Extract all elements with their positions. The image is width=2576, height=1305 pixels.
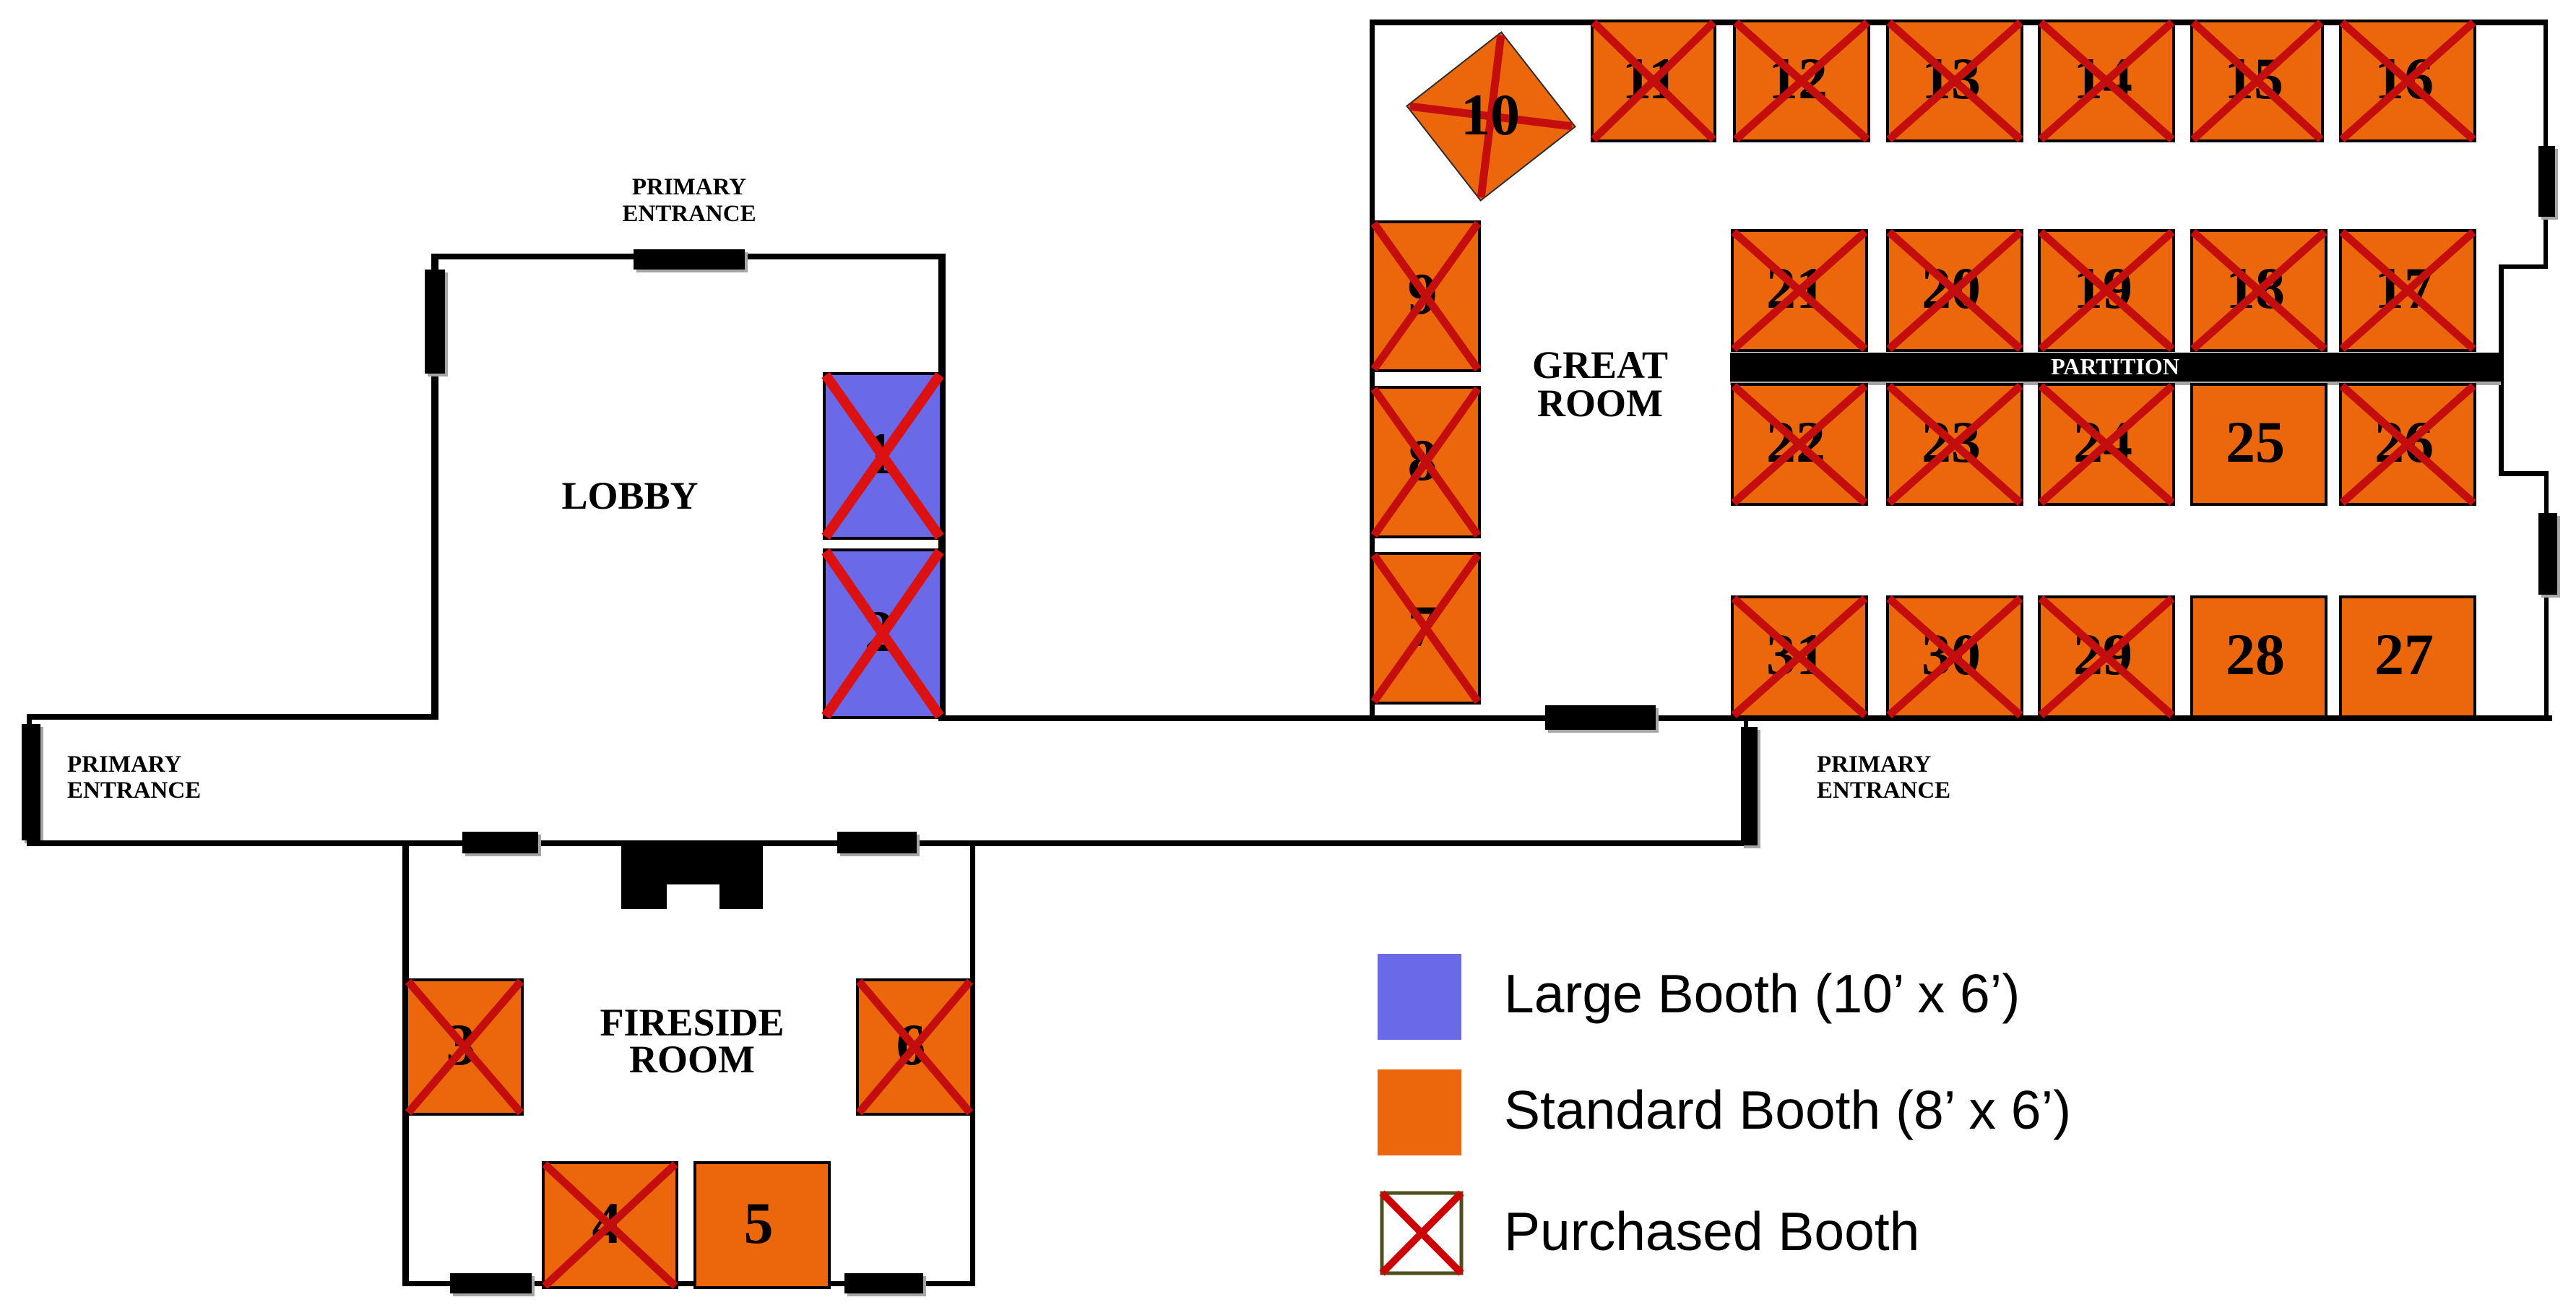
svg-text:27: 27 (2374, 621, 2434, 687)
svg-text:PRIMARY: PRIMARY (67, 751, 181, 778)
svg-text:10: 10 (1461, 82, 1520, 147)
svg-text:ROOM: ROOM (629, 1038, 755, 1081)
svg-text:Large Booth (10’ x 6’): Large Booth (10’ x 6’) (1504, 963, 2020, 1024)
svg-text:ENTRANCE: ENTRANCE (622, 201, 756, 227)
svg-text:ROOM: ROOM (1537, 382, 1663, 425)
svg-text:5: 5 (744, 1190, 774, 1256)
svg-text:ENTRANCE: ENTRANCE (1817, 778, 1950, 804)
svg-text:PRIMARY: PRIMARY (1817, 751, 1931, 778)
svg-text:PARTITION: PARTITION (2051, 353, 2179, 379)
svg-text:25: 25 (2226, 409, 2285, 475)
svg-text:28: 28 (2226, 621, 2285, 687)
svg-text:GREAT: GREAT (1532, 343, 1668, 387)
svg-text:LOBBY: LOBBY (561, 474, 698, 517)
svg-text:PRIMARY: PRIMARY (632, 174, 746, 200)
svg-text:Standard Booth (8’ x 6’): Standard Booth (8’ x 6’) (1504, 1080, 2071, 1140)
svg-text:Purchased Booth: Purchased Booth (1504, 1201, 1919, 1262)
svg-text:ENTRANCE: ENTRANCE (67, 778, 201, 804)
